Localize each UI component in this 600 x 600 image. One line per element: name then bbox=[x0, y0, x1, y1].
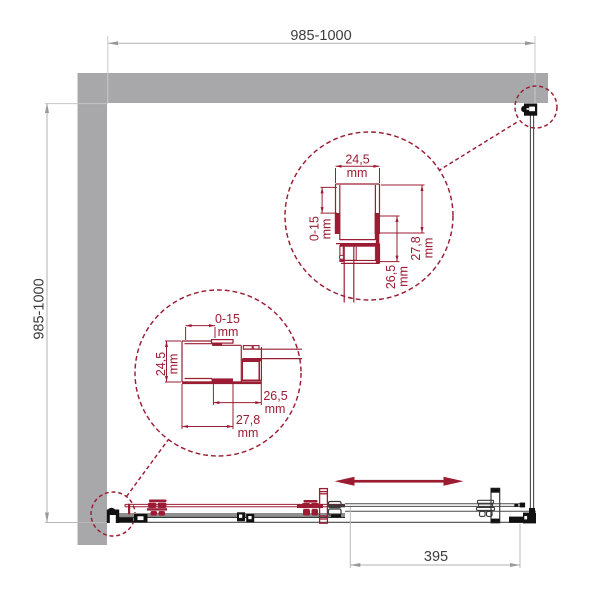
svg-text:mm: mm bbox=[218, 325, 239, 339]
svg-text:mm: mm bbox=[265, 402, 286, 416]
svg-text:24,5: 24,5 bbox=[345, 153, 369, 167]
svg-text:27,8: 27,8 bbox=[236, 413, 260, 427]
svg-text:26,5: 26,5 bbox=[263, 389, 287, 403]
svg-text:mm: mm bbox=[238, 426, 259, 440]
svg-text:mm: mm bbox=[347, 166, 368, 180]
svg-text:985-1000: 985-1000 bbox=[32, 278, 48, 339]
svg-text:395: 395 bbox=[424, 549, 448, 565]
svg-text:mm: mm bbox=[397, 266, 411, 287]
svg-text:985-1000: 985-1000 bbox=[290, 28, 351, 44]
svg-text:mm: mm bbox=[166, 354, 180, 375]
svg-text:0-15: 0-15 bbox=[215, 312, 240, 326]
svg-text:mm: mm bbox=[421, 238, 435, 259]
svg-text:mm: mm bbox=[320, 219, 334, 240]
